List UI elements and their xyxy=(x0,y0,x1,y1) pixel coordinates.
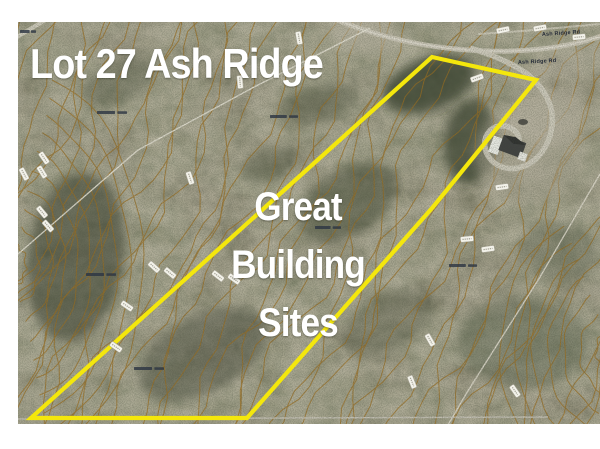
caption-line: Building xyxy=(231,236,365,294)
screenshot-canvas: Ash Ridge RdAsh Ridge Rd Lot 27 Ash Ridg… xyxy=(0,0,600,449)
lot-title-overlay: Lot 27 Ash Ridge xyxy=(30,40,323,88)
elevation-marker xyxy=(460,236,473,243)
building-sites-caption: Great Building Sites xyxy=(231,178,365,352)
caption-line: Sites xyxy=(231,294,365,352)
caption-line: Great xyxy=(231,178,365,236)
aerial-map-photo: Ash Ridge RdAsh Ridge Rd Lot 27 Ash Ridg… xyxy=(18,22,600,424)
